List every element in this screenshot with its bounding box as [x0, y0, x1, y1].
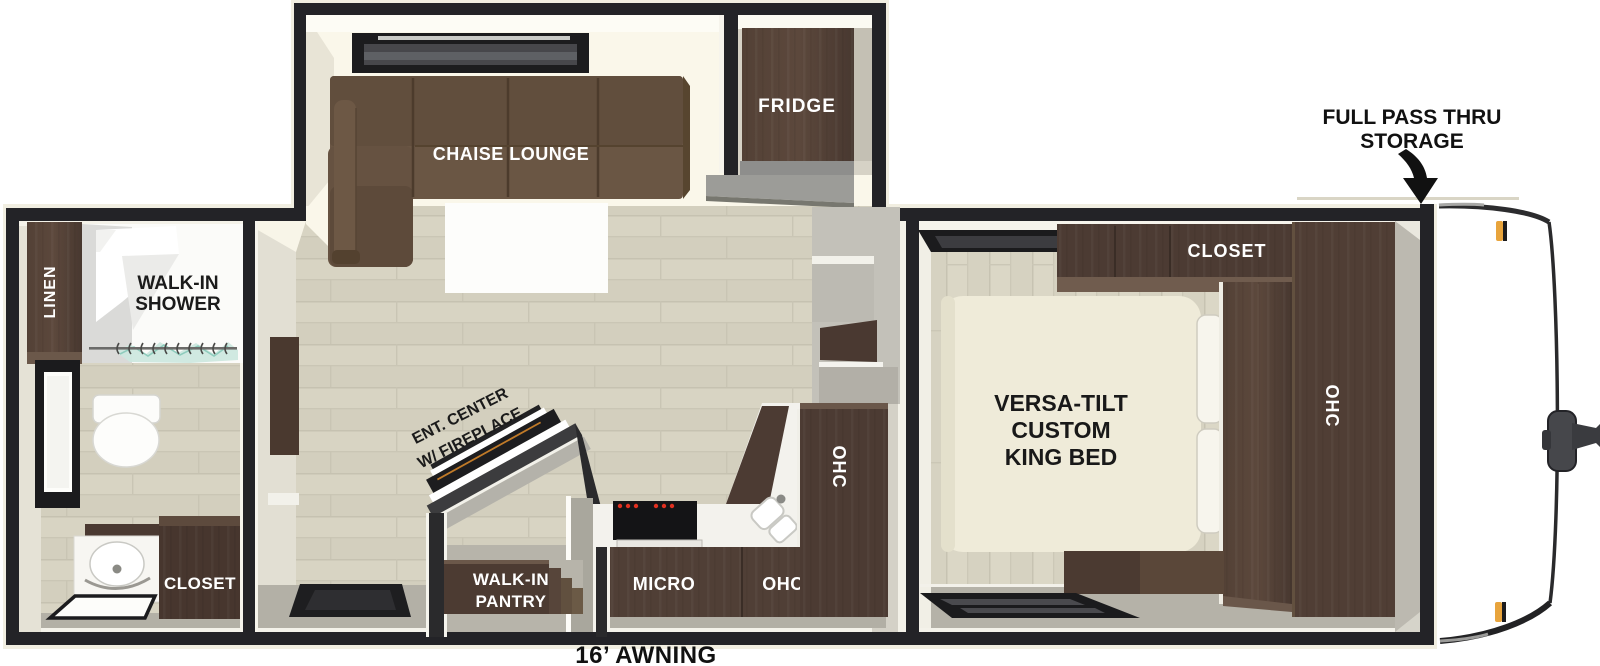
svg-text:FRIDGE: FRIDGE — [758, 96, 836, 117]
svg-text:SHOWER: SHOWER — [135, 294, 221, 315]
svg-text:OHC: OHC — [829, 446, 849, 489]
svg-text:CLOSET: CLOSET — [164, 574, 236, 593]
svg-text:OHC: OHC — [1322, 385, 1342, 428]
svg-text:CUSTOM: CUSTOM — [1011, 417, 1110, 443]
svg-text:WALK-IN: WALK-IN — [473, 570, 549, 589]
svg-text:OHC: OHC — [762, 574, 804, 594]
svg-text:16’ AWNING: 16’ AWNING — [575, 642, 716, 666]
svg-text:PANTRY: PANTRY — [476, 592, 547, 611]
svg-text:LINEN: LINEN — [42, 266, 59, 319]
svg-text:CLOSET: CLOSET — [1187, 241, 1266, 261]
svg-text:KING BED: KING BED — [1005, 444, 1117, 470]
svg-text:STORAGE: STORAGE — [1360, 130, 1463, 153]
svg-text:FULL PASS THRU: FULL PASS THRU — [1323, 106, 1502, 129]
svg-text:WALK-IN: WALK-IN — [137, 273, 218, 294]
svg-text:MICRO: MICRO — [633, 574, 696, 594]
svg-text:CHAISE LOUNGE: CHAISE LOUNGE — [433, 144, 590, 164]
svg-text:VERSA-TILT: VERSA-TILT — [994, 390, 1128, 416]
